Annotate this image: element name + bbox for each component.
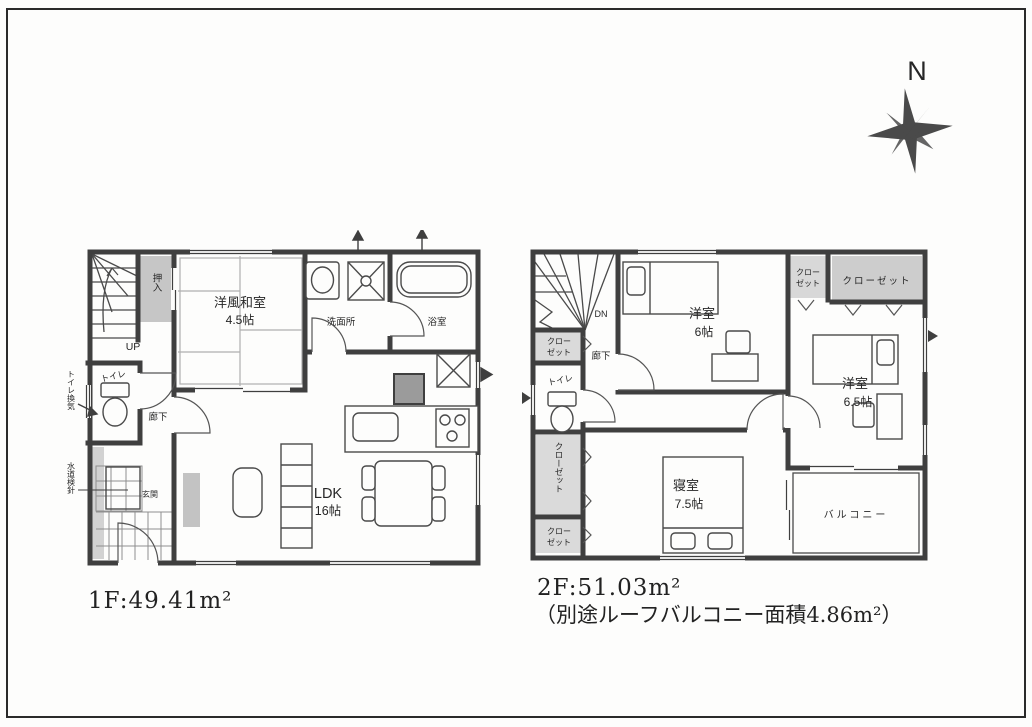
entrance-tile-grid [96, 466, 173, 560]
toilet-icon-1f [101, 383, 129, 426]
shinshitsu-size-label: 7.5帖 [675, 496, 704, 511]
closet-left-bottom [536, 520, 583, 553]
bath-label: 浴室 [427, 316, 446, 328]
north-label: N [907, 56, 927, 86]
closet-top-small-line2: ゼット [796, 278, 820, 288]
closet-top-small [788, 256, 828, 298]
floor2-balcony-note: （別途ルーフバルコニー面積4.86m²） [535, 599, 902, 629]
kitchen-sink-icon [353, 413, 398, 441]
low-table-icon [233, 468, 262, 517]
ldk-name-label: LDK [314, 486, 343, 502]
stove-icon [394, 374, 424, 404]
refrigerator-icon [437, 354, 470, 387]
stairs-up-label: UP [126, 341, 141, 353]
yoshitsu6-size-label: 6帖 [695, 324, 714, 339]
closet-top-wide-label: クローゼット [842, 275, 911, 287]
floor2-area-label: 2F:51.03m² [537, 575, 681, 601]
genkan-label: 玄関 [142, 489, 158, 499]
dining-table-icon [362, 461, 445, 526]
yoshitsu6-name-label: 洋室 [689, 306, 715, 321]
closet-left-bottom-line1: クロー [547, 527, 571, 536]
closet-left-bottom-line2: ゼット [547, 537, 571, 547]
bathtub-icon [397, 262, 471, 297]
stairs-down-label: DN [595, 309, 608, 319]
oshiire-label: 押入 [151, 272, 163, 292]
closet-left-top-line1: クロー [547, 337, 571, 346]
senmenjo-label: 洗面所 [327, 316, 356, 328]
washitsu-size-label: 4.5帖 [226, 312, 255, 327]
stairs-2f [535, 254, 614, 332]
floor-plan-1f: トイレ換気 水道検針 UP 押入 洋風和室 4.5帖 洗面所 浴室 トイレ 廊下… [60, 230, 500, 580]
floor1-area-label: 1F:49.41m² [88, 588, 232, 614]
hallway-label-1f: 廊下 [148, 411, 167, 423]
shinshitsu-name-label: 寝室 [673, 478, 699, 493]
washitsu-name-label: 洋風和室 [214, 295, 266, 310]
desk-icon-6jo [712, 331, 758, 381]
balcony-label: バルコニー [824, 509, 889, 521]
yoshitsu65-name-label: 洋室 [842, 376, 868, 391]
vent-arrow-2f [522, 392, 531, 404]
closet-left-tall-label: クローゼット [554, 442, 564, 493]
toilet-icon-2f [548, 392, 576, 432]
tv-stand-shade [183, 473, 200, 527]
ldk-size-label: 16帖 [315, 503, 341, 518]
closet-left-top-line2: ゼット [547, 347, 571, 357]
toilet-label-1f: トイレ [100, 368, 127, 384]
compass-rose: N [840, 35, 1000, 185]
yoshitsu65-size-label: 6.5帖 [844, 394, 873, 409]
floor-plan-2f: DN クロー ゼット 廊下 トイレ クローゼット クロー ゼット 洋室 6帖 ク… [510, 230, 950, 580]
closet-top-small-line1: クロー [796, 268, 820, 277]
stairs-1f [90, 254, 137, 338]
compass-star-icon [862, 83, 958, 179]
toilet-label-2f: トイレ [547, 373, 574, 388]
kitchen-counter [345, 406, 478, 452]
floorplan-page: N [0, 0, 1032, 727]
water-meter-note: 水道検針 [67, 461, 76, 495]
entrance-side-wall-shade [91, 447, 104, 559]
washbasin-icon [306, 262, 339, 299]
vent-arrow-2f-right [928, 330, 938, 342]
washing-machine-icon [348, 262, 384, 300]
toilet-vent-note: トイレ換気 [67, 370, 76, 411]
hallway-label-2f: 廊下 [591, 350, 610, 362]
tv-board-icon [281, 444, 312, 548]
